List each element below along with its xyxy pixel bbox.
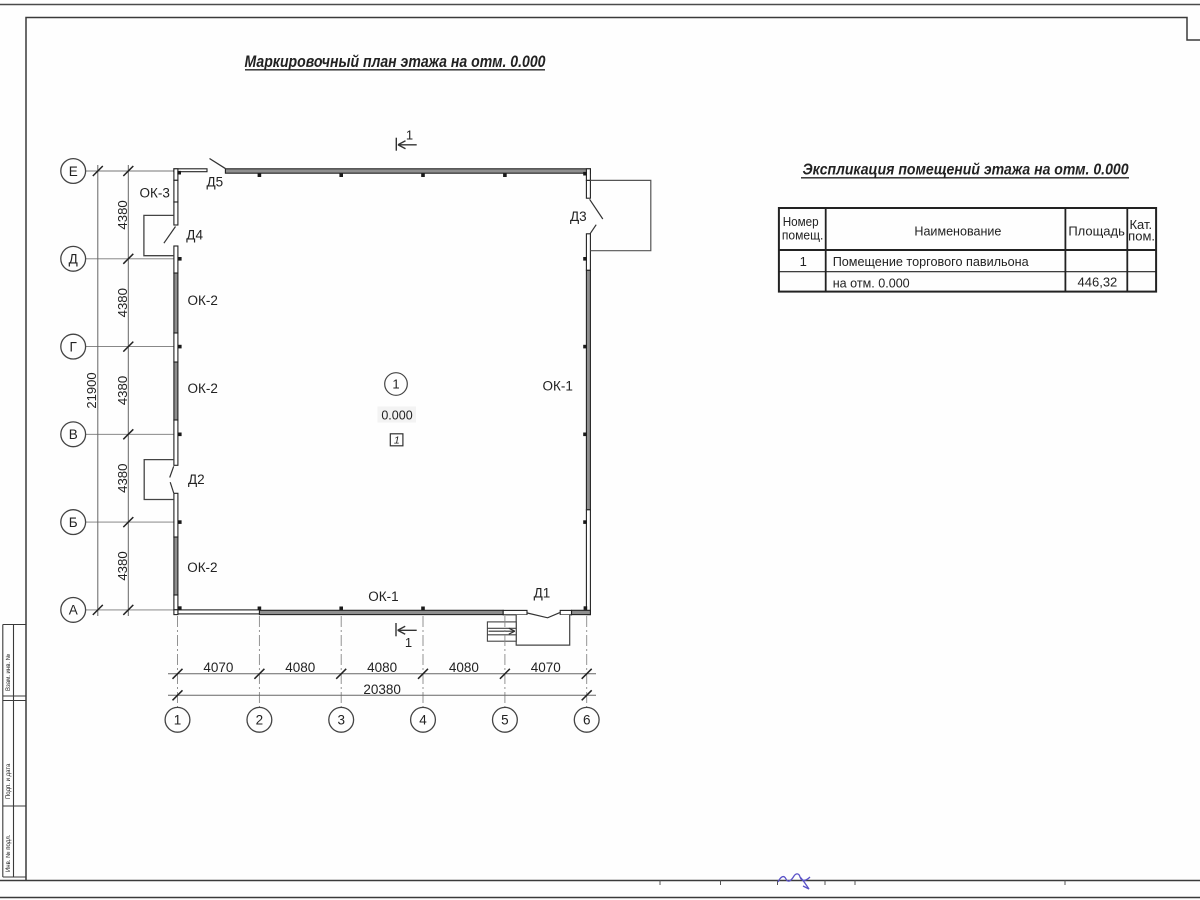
svg-text:4070: 4070 <box>203 660 233 675</box>
svg-text:ОК-2: ОК-2 <box>188 381 218 396</box>
svg-text:4380: 4380 <box>115 288 130 317</box>
svg-text:2: 2 <box>256 713 264 728</box>
svg-text:ОК-2: ОК-2 <box>187 560 217 575</box>
svg-text:3: 3 <box>337 713 345 728</box>
svg-text:Маркировочный план этажа на от: Маркировочный план этажа на отм. 0.000 <box>245 53 547 71</box>
svg-text:пом.: пом. <box>1128 228 1155 243</box>
svg-text:Д5: Д5 <box>207 174 224 189</box>
svg-text:1: 1 <box>394 435 400 447</box>
svg-text:4080: 4080 <box>285 660 315 675</box>
svg-text:Г: Г <box>70 339 78 354</box>
svg-text:20380: 20380 <box>363 682 401 697</box>
svg-text:ОК-1: ОК-1 <box>368 589 398 604</box>
svg-text:0.000: 0.000 <box>381 409 412 423</box>
svg-text:Взам. инв. №: Взам. инв. № <box>5 654 12 691</box>
svg-text:1: 1 <box>392 377 399 392</box>
svg-text:6: 6 <box>583 713 591 728</box>
svg-text:5: 5 <box>501 713 509 728</box>
svg-text:ОК-2: ОК-2 <box>188 293 218 308</box>
svg-text:Д3: Д3 <box>570 209 587 224</box>
svg-text:4: 4 <box>419 713 427 728</box>
svg-text:на отм. 0.000: на отм. 0.000 <box>833 275 910 290</box>
svg-text:21900: 21900 <box>84 372 99 408</box>
svg-text:А: А <box>69 603 78 618</box>
svg-text:1: 1 <box>406 128 413 143</box>
svg-text:Экспликация помещений этажа на: Экспликация помещений этажа на отм. 0.00… <box>803 162 1129 179</box>
svg-text:помещ.: помещ. <box>782 227 824 242</box>
svg-text:Д4: Д4 <box>186 228 203 243</box>
svg-text:4380: 4380 <box>115 464 130 493</box>
svg-text:Е: Е <box>69 164 78 179</box>
svg-text:1: 1 <box>405 635 412 650</box>
svg-text:4380: 4380 <box>115 376 130 405</box>
svg-text:ОК-1: ОК-1 <box>543 378 573 393</box>
svg-text:4380: 4380 <box>115 551 130 580</box>
svg-text:ОК-3: ОК-3 <box>140 185 170 200</box>
svg-text:Инв. № подл.: Инв. № подл. <box>5 834 12 872</box>
svg-text:Помещение торгового павильона: Помещение торгового павильона <box>833 254 1030 269</box>
svg-text:1: 1 <box>174 713 182 728</box>
svg-text:Д2: Д2 <box>188 472 205 487</box>
svg-text:Наименование: Наименование <box>914 223 1001 238</box>
svg-text:Д: Д <box>69 252 78 267</box>
svg-text:Подп. и дата: Подп. и дата <box>6 763 12 799</box>
svg-text:4380: 4380 <box>115 200 130 229</box>
svg-text:В: В <box>69 427 78 442</box>
svg-text:4080: 4080 <box>367 660 397 675</box>
svg-text:1: 1 <box>800 254 807 269</box>
svg-text:Б: Б <box>69 515 78 530</box>
svg-text:4070: 4070 <box>531 660 561 675</box>
svg-text:Д1: Д1 <box>534 586 551 601</box>
svg-text:4080: 4080 <box>449 660 479 675</box>
svg-text:Площадь: Площадь <box>1068 224 1125 239</box>
svg-text:446,32: 446,32 <box>1078 274 1118 289</box>
